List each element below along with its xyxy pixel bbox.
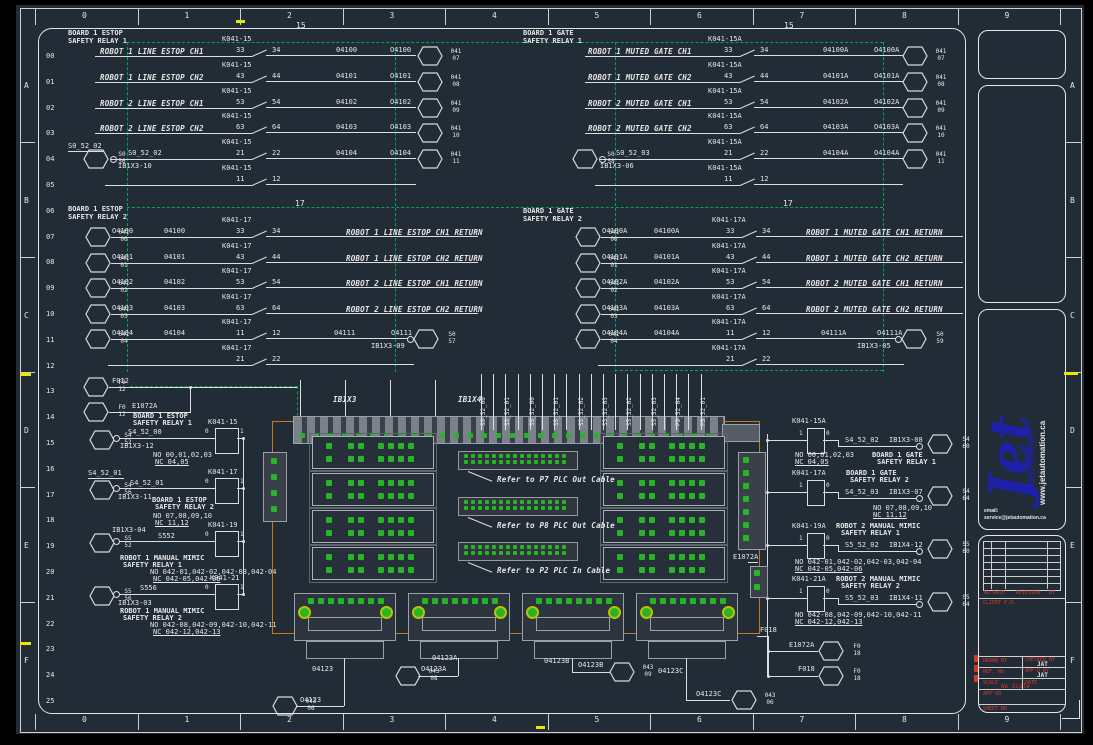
terminal-led [743,522,749,528]
terminal-led [743,496,749,502]
coil-pin: 0 [205,429,209,435]
wire [823,492,838,493]
relay-name: K041-17 [222,217,252,224]
wire [686,700,730,701]
ruler-tick [343,714,344,730]
wire-number: 04104A [654,330,679,337]
bottom-ruler-number: 1 [185,716,190,724]
ruler-tick [20,257,35,258]
left-margin-letter: C [24,312,29,320]
relay-bank [603,473,725,506]
terminal-led [388,554,394,560]
terminal-led [596,598,602,604]
wire [109,387,297,388]
terminal-led [271,458,277,464]
terminal-led [499,454,503,458]
ruler-tick [138,714,139,730]
terminal-led [520,460,524,464]
bus-number: 15 [784,22,794,30]
terminal-led [639,554,645,560]
bottom-ruler-number: 7 [800,716,805,724]
wire [119,438,215,439]
dsub-body [308,617,382,631]
bottom-ruler-number: 8 [902,716,907,724]
yellow-marker [20,642,31,645]
signal-description: ROBOT 1 MUTED GATE CH1 RETURN [806,228,943,237]
top-ruler-number: 3 [390,12,395,20]
terminal-label: IB1X3-10 [118,163,152,170]
terminal-led [471,506,475,510]
vertical-wire-label: S3_52_00 [480,368,487,426]
wire [754,184,903,185]
wire-label: S5_52_02 [845,542,879,549]
wire [599,159,740,160]
contact-pin: 54 [272,279,280,286]
signal-description: ROBOT 2 LINE ESTOP CH2 RETURN [346,305,483,314]
terminal-led [541,506,545,510]
vertical-wire-label: S5_52_01 [553,368,560,426]
wire [754,55,903,56]
wire [111,314,252,315]
terminal-led [358,493,364,499]
terminal-led [639,530,645,536]
contact-pin: 53 [236,279,244,286]
terminal-led [398,517,404,523]
ruler-tick [548,9,549,25]
plc-address: O4103A [874,124,899,131]
terminal-led [408,480,414,486]
top-ruler-number: 9 [1005,12,1010,20]
relay-name: K041-17A [712,268,746,275]
hexagon-icon [902,149,928,169]
wire [591,374,592,430]
ruler-tick [1060,9,1061,25]
wire-number: F012 [112,378,129,385]
terminal-led [710,598,716,604]
terminal-led [348,456,354,462]
dsub-hood [648,641,726,659]
terminal-led [520,500,524,504]
wire [754,81,903,82]
wire [344,658,345,706]
cross-reference-hex-tag: F012 [83,377,109,397]
coil-pin: 1 [799,536,803,542]
wire [838,604,918,605]
terminal-led [689,517,695,523]
cross-reference-hex-tag: 04104 [85,329,111,349]
section-title: SAFETY RELAY 2 [523,216,582,223]
terminal-led [513,454,517,458]
terminal-led [388,480,394,486]
relay-name: K041-19 [208,522,238,529]
row-number: 13 [46,388,54,395]
ruler-tick [855,9,856,25]
relay-name: K041-17A [792,470,826,477]
wire-junction-dot [242,437,245,440]
dsub-body [422,617,496,631]
row-number: 14 [46,414,54,421]
terminal-led [348,480,354,486]
cross-reference-hex-tag: 04108 [902,72,928,92]
terminal-led [485,506,489,510]
wire [838,551,918,552]
terminal-led [689,554,695,560]
terminal-led [670,598,676,604]
ruler-tick [138,9,139,25]
wire-number: 04101A [654,254,679,261]
ruler-tick [1066,142,1081,143]
wire [838,498,918,499]
hexagon-icon [85,253,111,273]
terminal-led [617,456,623,462]
contact-pin: 63 [236,124,244,131]
terminal-led [271,506,277,512]
contact-pin: 33 [724,47,732,54]
bottom-ruler-number: 0 [82,716,87,724]
contact-pin: 12 [272,176,280,183]
cross-reference-hex-tag: 04309 [609,662,635,682]
wire [748,562,758,563]
terminal-led [639,443,645,449]
coil-pin: 0 [826,483,830,489]
terminal-led [520,454,524,458]
terminal-led [398,554,404,560]
contact-pin: 21 [236,150,244,157]
terminal-led [492,551,496,555]
hexagon-icon [901,329,927,349]
terminal-led [388,530,394,536]
cross-reference-hex-tag: 04101 [85,253,111,273]
contact-list: NC 04,05 [795,459,829,466]
board-label: SAFETY RELAY 2 [841,583,900,590]
wire-number: 04101A [823,73,848,80]
wire [95,108,252,109]
ruler-tick [240,714,241,730]
ruler-tick [20,142,35,143]
section-title: SAFETY RELAY 1 [68,38,127,45]
cross-reference-hex-tag: 04308 [395,666,421,686]
hex-bottom-label: 60 [953,444,979,450]
terminal-led [499,500,503,504]
wire [105,185,252,186]
terminal-led [326,554,332,560]
terminal-led [555,500,559,504]
bottom-ruler-number: 6 [697,716,702,724]
terminal-led [541,454,545,458]
row-number: 21 [46,595,54,602]
hex-bottom-label: 64 [953,496,979,502]
terminal-led [743,470,749,476]
wire [266,338,410,339]
signal-description: ROBOT 2 LINE ESTOP CH1 RETURN [346,279,483,288]
row-number: 03 [46,130,54,137]
cross-reference-hex-tag: S556 [89,586,115,606]
vertical-wire-label: S5_52_02 [626,368,633,426]
hexagon-icon [83,377,109,397]
contact-pin: 63 [236,305,244,312]
wire [768,676,818,677]
relay-name: K041-15A [708,62,742,69]
row-number: 02 [46,105,54,112]
bottom-ruler-number: 9 [1005,716,1010,724]
terminal-led [471,545,475,549]
section-title: BOARD 1 GATE [523,30,574,37]
terminal-led [499,506,503,510]
wire [601,237,742,238]
terminal-led [679,530,685,536]
relay-coil [215,428,239,454]
terminal-label: IB1X3-04 [112,527,146,534]
terminal-led [520,545,524,549]
contact-pin: 43 [236,254,244,261]
cross-reference-hex-tag: 04102 [85,278,111,298]
terminal-led [669,443,675,449]
left-margin-letter: F [24,657,29,665]
relay-name: K041-15A [708,88,742,95]
contact-pin: 64 [272,305,280,312]
wire [585,56,740,57]
hex-bottom-label: 60 [953,549,979,555]
signal-description: ROBOT 1 LINE ESTOP CH1 RETURN [346,228,483,237]
ruler-tick [650,9,651,25]
hexagon-icon [83,402,109,422]
terminal-led [378,493,384,499]
row-number: 01 [46,79,54,86]
wire [754,132,903,133]
terminal-led [562,545,566,549]
hex-bottom-label: 06 [757,700,783,706]
terminal-led [594,433,599,438]
relay-coil [807,586,825,612]
terminal-led [398,480,404,486]
contact-pin: 22 [760,150,768,157]
terminal-label: IB1X3-03 [118,600,152,607]
left-margin-letter: D [24,427,29,435]
terminal-led [639,456,645,462]
ruler-tick [1066,602,1081,603]
wire-label: S4_52_02 [845,437,879,444]
terminal-led [358,456,364,462]
terminal-led [548,551,552,555]
terminal-led [471,551,475,555]
relay-name: K041-15 [208,419,238,426]
terminal-led [617,443,623,449]
ruler-tick [855,714,856,730]
terminal-led [527,551,531,555]
section-title: SAFETY RELAY 1 [523,38,582,45]
wire [585,133,740,134]
hex-bottom-label: 10 [928,133,954,139]
schematic-canvas: Jet Automation www.jetautomation.ca emai… [0,0,1093,745]
cross-reference-hex-tag: S552 [89,533,115,553]
hexagon-icon [927,592,953,612]
terminal-led [669,567,675,573]
wire [768,636,769,677]
wire-number: 04101 [164,254,185,261]
terminal-led [617,517,623,523]
section-title: BOARD 1 GATE [523,208,574,215]
cross-reference-hex-tag: 04110 [417,123,443,143]
hexagon-icon [731,690,757,710]
wire-junction-dot [242,540,245,543]
signal-description: ROBOT 2 LINE ESTOP CH1 [100,99,204,108]
terminal-led [408,456,414,462]
cross-reference-hex-tag: 04111 [417,149,443,169]
relay-name: K041-15 [222,88,252,95]
plc-address: O4103 [112,305,133,312]
signal-description: ROBOT 2 LINE ESTOP CH2 [100,124,204,133]
relay-bank [312,436,434,469]
terminal-led [318,598,324,604]
component-label: E1072A [733,554,758,561]
hexagon-icon [902,123,928,143]
terminal-led [586,598,592,604]
terminal-led [348,517,354,523]
wire [266,132,416,133]
hex-bottom-label: 11 [928,159,954,165]
wire [266,107,416,108]
wire [95,82,252,83]
cross-reference-hex-tag: 04107 [902,46,928,66]
terminal-led [700,598,706,604]
wire-number: 04100 [164,228,185,235]
contact-pin: 11 [726,330,734,337]
terminal-led [679,554,685,560]
hexagon-icon [818,666,844,686]
cross-reference-hex-tag: F018 [818,641,844,661]
top-ruler-number: 4 [492,12,497,20]
terminal-led [478,460,482,464]
terminal-led [464,545,468,549]
terminal-led [538,433,543,438]
wire [686,658,687,700]
ruler-tick [20,602,35,603]
wire-number: F018 [760,627,777,634]
relay-name: K041-17A [712,319,746,326]
vertical-wire-label: S5_52_00 [529,368,536,426]
terminal-led [326,567,332,573]
wire [542,374,543,430]
terminal-led [699,517,705,523]
hexagon-icon [417,72,443,92]
terminal-led [478,551,482,555]
terminal-led [398,456,404,462]
row-number: 08 [46,259,54,266]
terminal-led [720,598,726,604]
terminal-led [358,480,364,486]
relay-name: K041-15 [222,62,252,69]
terminal-led [326,456,332,462]
cross-reference-hex-tag: 04101 [575,253,601,273]
terminal-led [527,454,531,458]
wire [111,263,252,264]
contact-pin: 54 [272,99,280,106]
terminal-led [408,567,414,573]
terminal-led [699,456,705,462]
terminal-led [520,506,524,510]
contact-pin: 44 [760,73,768,80]
terminal-led [432,598,438,604]
plc-address: O4101 [390,73,411,80]
row-number: 22 [46,621,54,628]
wire [823,545,838,546]
row-number: 05 [46,182,54,189]
terminal-led [471,460,475,464]
relay-name: K041-15 [222,113,252,120]
plc-cable-note: Refer to P8 PLC Out Cable [497,521,615,530]
cross-reference-hex-tag: S560 [927,539,953,559]
wire [458,658,459,676]
wire [110,159,252,160]
terminal-led [743,457,749,463]
terminal-led [669,554,675,560]
terminal-led [679,493,685,499]
terminal-led [679,567,685,573]
contact-pin: 54 [762,279,770,286]
wire [585,108,740,109]
terminal-led [699,530,705,536]
plc-address: O4104 [112,330,133,337]
relay-coil [807,533,825,559]
wire-label: S4_52_03 [845,489,879,496]
relay-name: K041-21 [210,575,240,582]
top-ruler-number: 0 [82,12,87,20]
terminal-led [513,545,517,549]
terminal-led [689,493,695,499]
ruler-tick [35,9,36,25]
wire-terminal-circle [916,443,923,450]
terminal-led [513,500,517,504]
contact-pin: 21 [724,150,732,157]
right-margin-letter: F [1070,657,1075,665]
terminal-led [649,567,655,573]
terminal-led [699,567,705,573]
wire-junction-dot [242,487,245,490]
terminal-led [348,443,354,449]
signal-description: ROBOT 1 MUTED GATE CH2 RETURN [806,254,943,263]
hex-bottom-label: 59 [927,339,953,345]
wire-label: S0_52_03 [616,150,650,157]
wire [95,133,252,134]
wire-terminal-circle [916,548,923,555]
cross-reference-hex-tag: 04100 [85,227,111,247]
hexagon-icon [395,666,421,686]
signal-description: ROBOT 2 MUTED GATE CH2 RETURN [806,305,943,314]
terminal-led [378,567,384,573]
contact-pin: 11 [236,176,244,183]
contact-pin: 33 [236,228,244,235]
terminal-led [348,554,354,560]
contact-pin: 34 [272,228,280,235]
terminal-led [478,506,482,510]
terminal-led [669,480,675,486]
hexagon-icon [575,329,601,349]
relay-bank [312,510,434,543]
terminal-led [548,545,552,549]
top-ruler-number: 7 [800,12,805,20]
terminal-led [679,517,685,523]
plc-address: O4100 [390,47,411,54]
coil-pin: 0 [205,532,209,538]
hexagon-icon [609,662,635,682]
contact-pin: 53 [726,279,734,286]
terminal-led [541,460,545,464]
top-ruler-number: 1 [185,12,190,20]
cross-reference-hex-tag: 04100 [575,227,601,247]
relay-name: K041-21A [792,576,826,583]
cross-reference-hex-tag: S456 [89,480,115,500]
plc-address: O4102 [390,99,411,106]
